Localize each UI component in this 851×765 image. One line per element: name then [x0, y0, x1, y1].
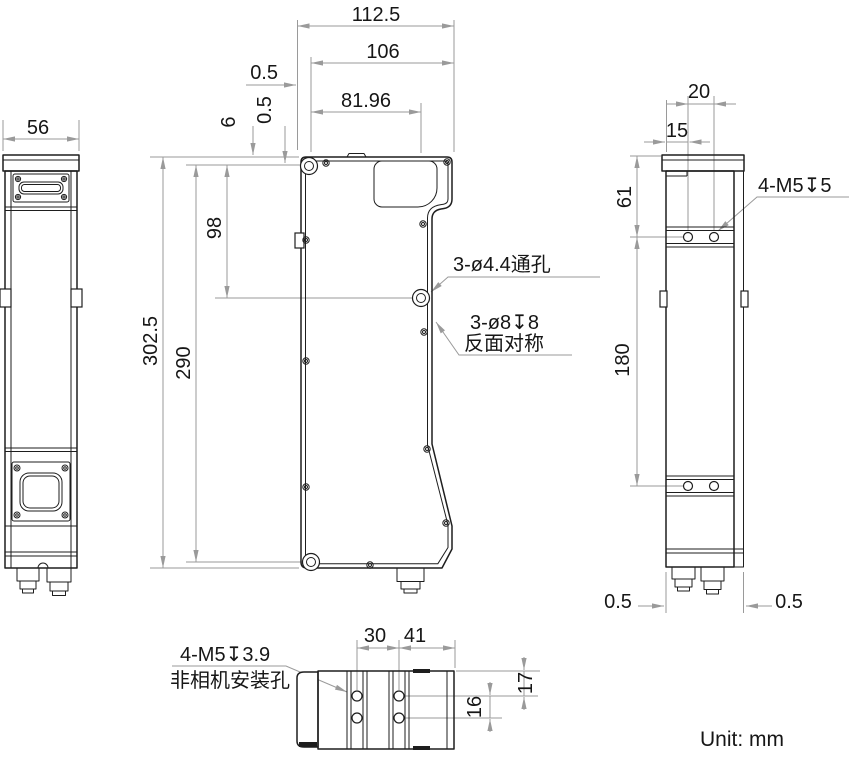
through-hole-annotation: 3-ø4.4通孔	[453, 253, 551, 276]
front-lip-dim: 0.5	[250, 62, 278, 84]
side-tab	[0, 289, 11, 307]
view-front-geometry	[295, 154, 452, 594]
dimension-drawing: 56 112.5 106 81.96 0.5 6 0.5 302.5 290 9…	[0, 0, 851, 765]
panel-screws	[15, 176, 66, 199]
mount-rails	[347, 671, 409, 749]
top-cap	[3, 155, 79, 171]
connectors	[17, 568, 71, 596]
left-width-dim: 56	[27, 117, 49, 139]
bottom-row-spacing-dim: 16	[464, 696, 486, 718]
case-screws	[303, 159, 450, 568]
mount-hole	[710, 233, 719, 242]
camera-window	[20, 473, 62, 511]
unit-label: Unit: mm	[700, 728, 784, 751]
front-hole-span-dim: 290	[173, 346, 195, 379]
side-gap-left-dim: 0.5	[604, 591, 632, 613]
body-outline	[318, 671, 454, 749]
side-mount-holes-annotation: 4-M5↧5	[758, 175, 831, 197]
end-cap	[297, 672, 318, 747]
front-top-small-dim: 0.5	[254, 96, 276, 124]
view-side-geometry	[660, 155, 748, 594]
laser-slot	[19, 182, 63, 194]
front-total-width-dim: 112.5	[352, 4, 401, 26]
top-recess-pad	[374, 161, 437, 207]
front-total-height-dim: 302.5	[140, 316, 162, 366]
text-layer: 56 112.5 106 81.96 0.5 6 0.5 302.5 290 9…	[27, 4, 832, 751]
side-hole-rows-dim: 180	[612, 343, 634, 376]
bottom-mount-holes-annotation: 4-M5↧3.9	[180, 644, 270, 666]
leader-mount-holes	[718, 197, 849, 231]
counterbore-note: 反面对称	[464, 332, 544, 355]
side-tab	[71, 289, 82, 307]
bottom-edge-row-dim: 17	[515, 672, 537, 694]
bottom-mount-note: 非相机安装孔	[170, 669, 290, 692]
front-hole-column-dim: 81.96	[341, 90, 391, 112]
front-rail	[734, 171, 744, 567]
camera-window-frame	[12, 462, 70, 521]
view-left	[0, 120, 82, 596]
side-tab	[660, 291, 667, 307]
mount-holes	[352, 691, 404, 723]
leader-through-holes	[431, 277, 600, 292]
connector	[397, 568, 424, 593]
side-edge-hole-dim: 15	[666, 120, 688, 142]
top-cap	[662, 155, 744, 171]
front-hole-pitch-dim: 98	[204, 217, 226, 239]
bottom-rail-spacing-dim: 30	[364, 625, 386, 647]
view-side	[630, 96, 849, 613]
side-hole-spacing-dim: 20	[688, 81, 710, 103]
mount-through-holes	[301, 158, 430, 571]
counterbore-annotation: 3-ø8↧8	[470, 312, 539, 334]
side-top-holes-dim: 61	[614, 186, 636, 208]
bottom-rail-edge-dim: 41	[404, 625, 426, 647]
front-body-width-dim: 106	[366, 41, 399, 63]
mount-hole	[710, 482, 719, 491]
view-side-dimension-lines	[630, 96, 849, 613]
mount-hole	[684, 482, 693, 491]
body-outline	[301, 157, 452, 568]
technical-drawing-page: 56 112.5 106 81.96 0.5 6 0.5 302.5 290 9…	[0, 0, 851, 765]
view-left-geometry	[0, 155, 82, 596]
front-top-offset-dim: 6	[218, 116, 240, 127]
side-gap-right-dim: 0.5	[775, 591, 803, 613]
mount-hole	[684, 233, 693, 242]
body-inner-line	[306, 161, 449, 564]
connectors	[672, 567, 724, 594]
side-tab	[741, 291, 748, 307]
